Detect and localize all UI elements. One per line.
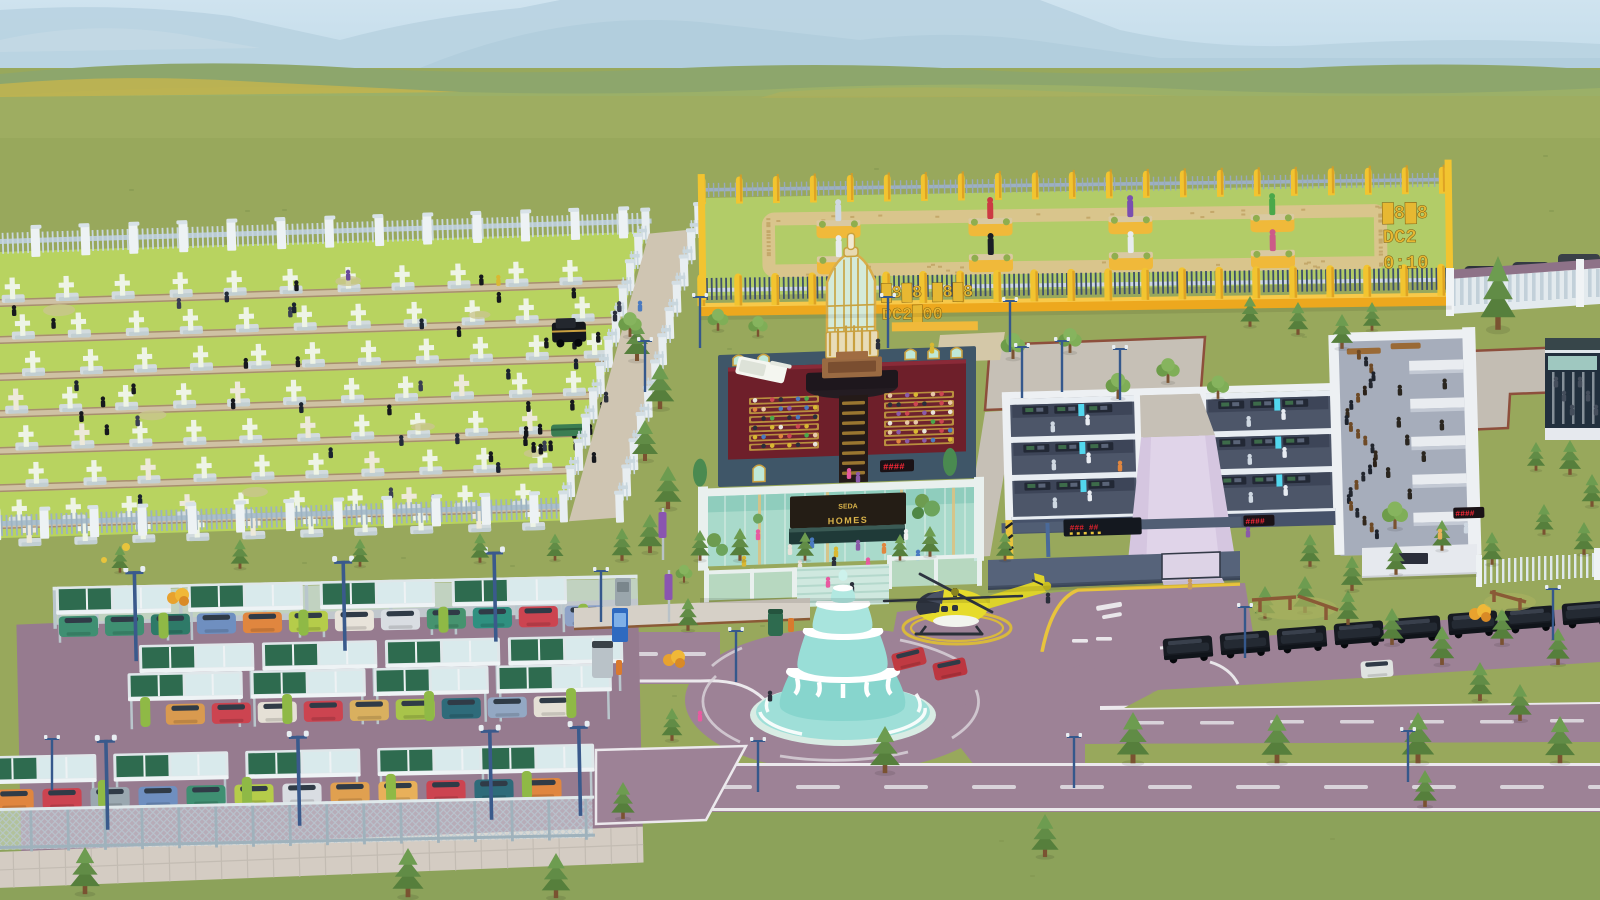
svg-text:0:10: 0:10 [1383, 252, 1429, 275]
svg-text:### ##: ### ## [1069, 524, 1098, 534]
svg-text:█8█8 █8█8: █8█8 █8█8 [881, 281, 973, 303]
svg-text:DC2: DC2 [1382, 226, 1417, 248]
svg-text:█8█8: █8█8 [1382, 202, 1428, 225]
svg-text:####: #### [1455, 510, 1475, 520]
svg-text:####: #### [1245, 517, 1265, 527]
svg-text:SEDA: SEDA [838, 503, 857, 511]
svg-text:HOMES: HOMES [828, 515, 869, 526]
svg-text:####: #### [883, 462, 905, 473]
